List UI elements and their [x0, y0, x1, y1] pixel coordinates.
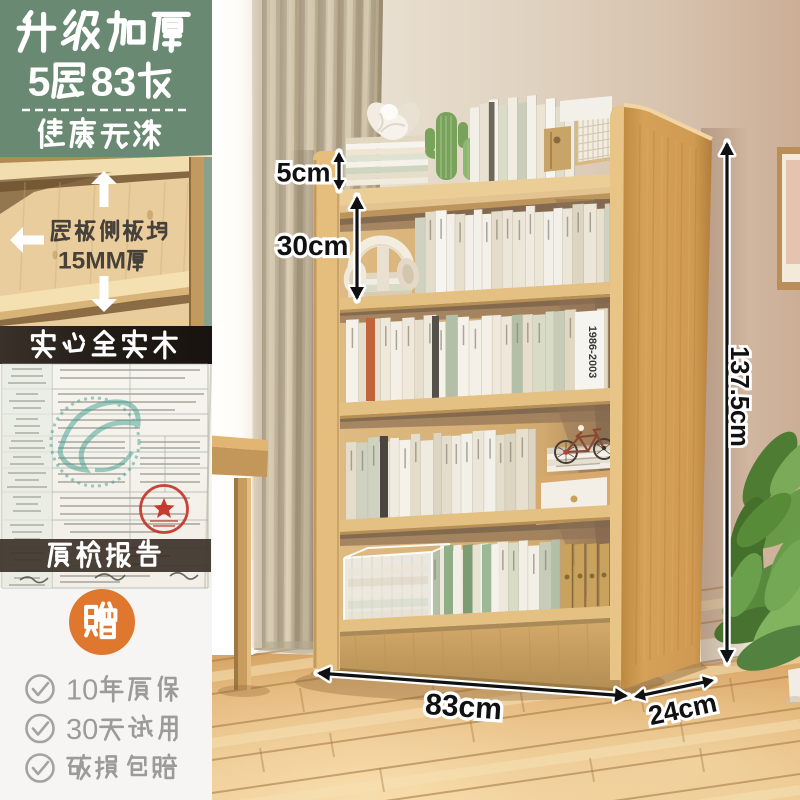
svg-text:83: 83: [91, 59, 137, 105]
svg-text:1986-2003: 1986-2003: [586, 326, 598, 379]
svg-text:30cm: 30cm: [277, 230, 349, 261]
svg-text:83cm: 83cm: [424, 688, 503, 726]
svg-text:5: 5: [28, 59, 51, 105]
svg-text:10: 10: [66, 674, 98, 706]
svg-text:15MM: 15MM: [58, 248, 126, 275]
svg-text:137.5cm: 137.5cm: [725, 346, 753, 447]
svg-text:30: 30: [66, 714, 98, 746]
svg-text:5cm: 5cm: [277, 158, 331, 188]
